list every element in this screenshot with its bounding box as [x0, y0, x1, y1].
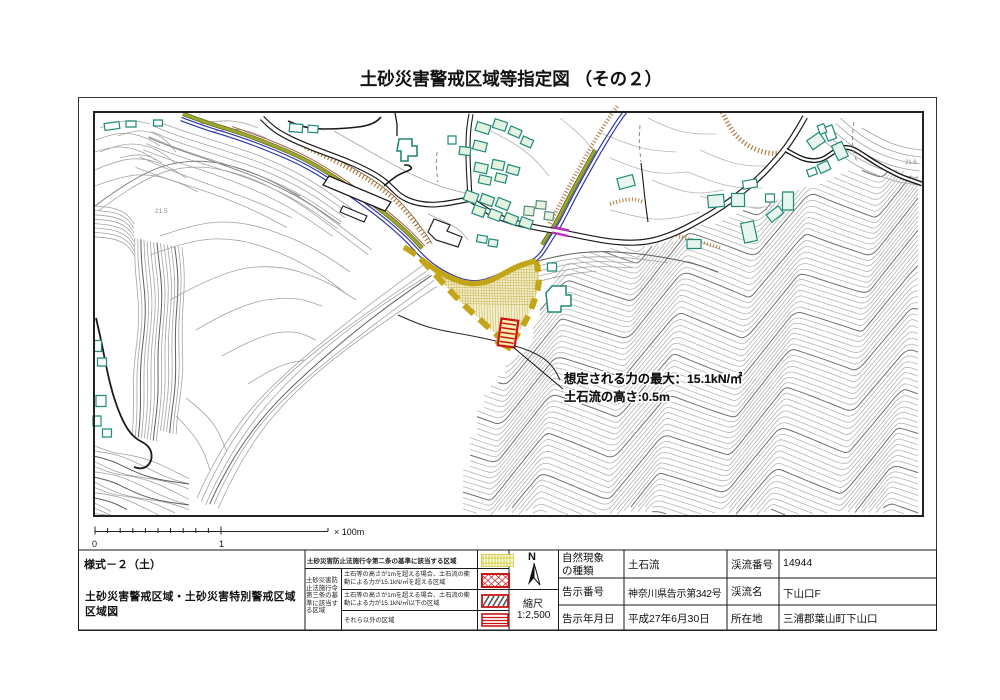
svg-text:想定される力の最大：15.1kN/㎡: 想定される力の最大：15.1kN/㎡ [564, 371, 743, 386]
svg-text:土石流の高さ:0.5m: 土石流の高さ:0.5m [564, 389, 670, 404]
svg-text:21.5: 21.5 [155, 208, 168, 215]
svg-text:1: 1 [219, 539, 224, 549]
svg-text:× 100m: × 100m [334, 527, 364, 537]
svg-text:0: 0 [92, 539, 97, 549]
svg-text:21.6: 21.6 [905, 160, 917, 166]
